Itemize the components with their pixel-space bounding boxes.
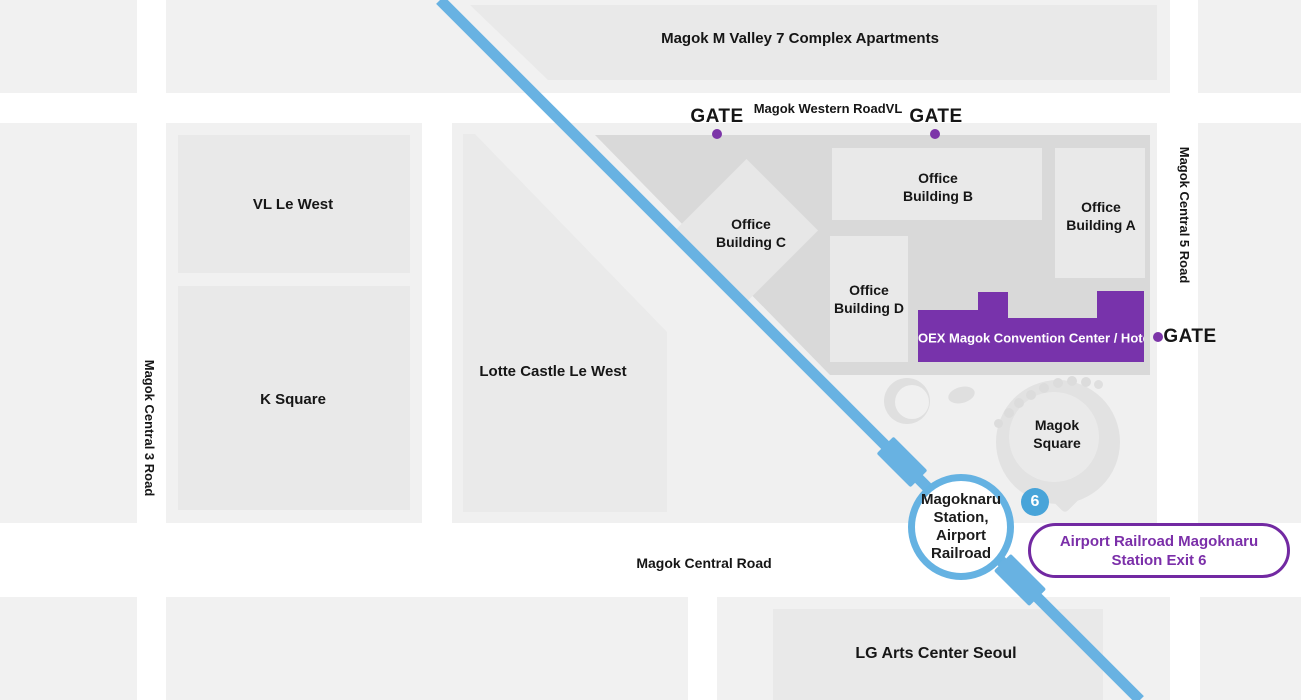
- office-c-label: Office Building C: [716, 215, 786, 251]
- airport-railroad-line-layer: [0, 0, 1301, 700]
- gate-label-east: GATE: [1163, 328, 1216, 346]
- office-a-label: Office Building A: [1066, 198, 1135, 234]
- k-square-label: K Square: [260, 391, 326, 409]
- road-label-central: Magok Central Road: [636, 554, 771, 572]
- magok-square-label: Magok Square: [1033, 416, 1080, 452]
- lotte-castle-label: Lotte Castle Le West: [479, 363, 626, 381]
- magok-area-map: COEX Magok Convention Center / Hotel Mag…: [0, 0, 1301, 700]
- lg-arts-label: LG Arts Center Seoul: [855, 645, 1016, 663]
- gate-dot-east: [1153, 332, 1163, 342]
- road-label-western: Magok Western RoadVL: [754, 100, 903, 118]
- office-d-label: Office Building D: [834, 281, 904, 317]
- exit-6-callout: Airport Railroad Magoknaru Station Exit …: [1028, 523, 1290, 578]
- office-b-label: Office Building B: [903, 169, 973, 205]
- gate-dot-north-east: [930, 129, 940, 139]
- gate-label-north-west: GATE: [690, 108, 743, 126]
- apartments-label: Magok M Valley 7 Complex Apartments: [661, 30, 939, 48]
- vl-le-west-label: VL Le West: [253, 196, 333, 214]
- road-label-central-5: Magok Central 5 Road: [1175, 147, 1193, 284]
- gate-label-north-east: GATE: [909, 108, 962, 126]
- road-label-central-3: Magok Central 3 Road: [140, 360, 158, 497]
- gate-dot-north-west: [712, 129, 722, 139]
- exit-6-badge: 6: [1021, 488, 1049, 516]
- station-marker-magoknaru: Magoknaru Station, Airport Railroad: [908, 474, 1014, 580]
- station-label: Magoknaru Station, Airport Railroad: [915, 491, 1007, 563]
